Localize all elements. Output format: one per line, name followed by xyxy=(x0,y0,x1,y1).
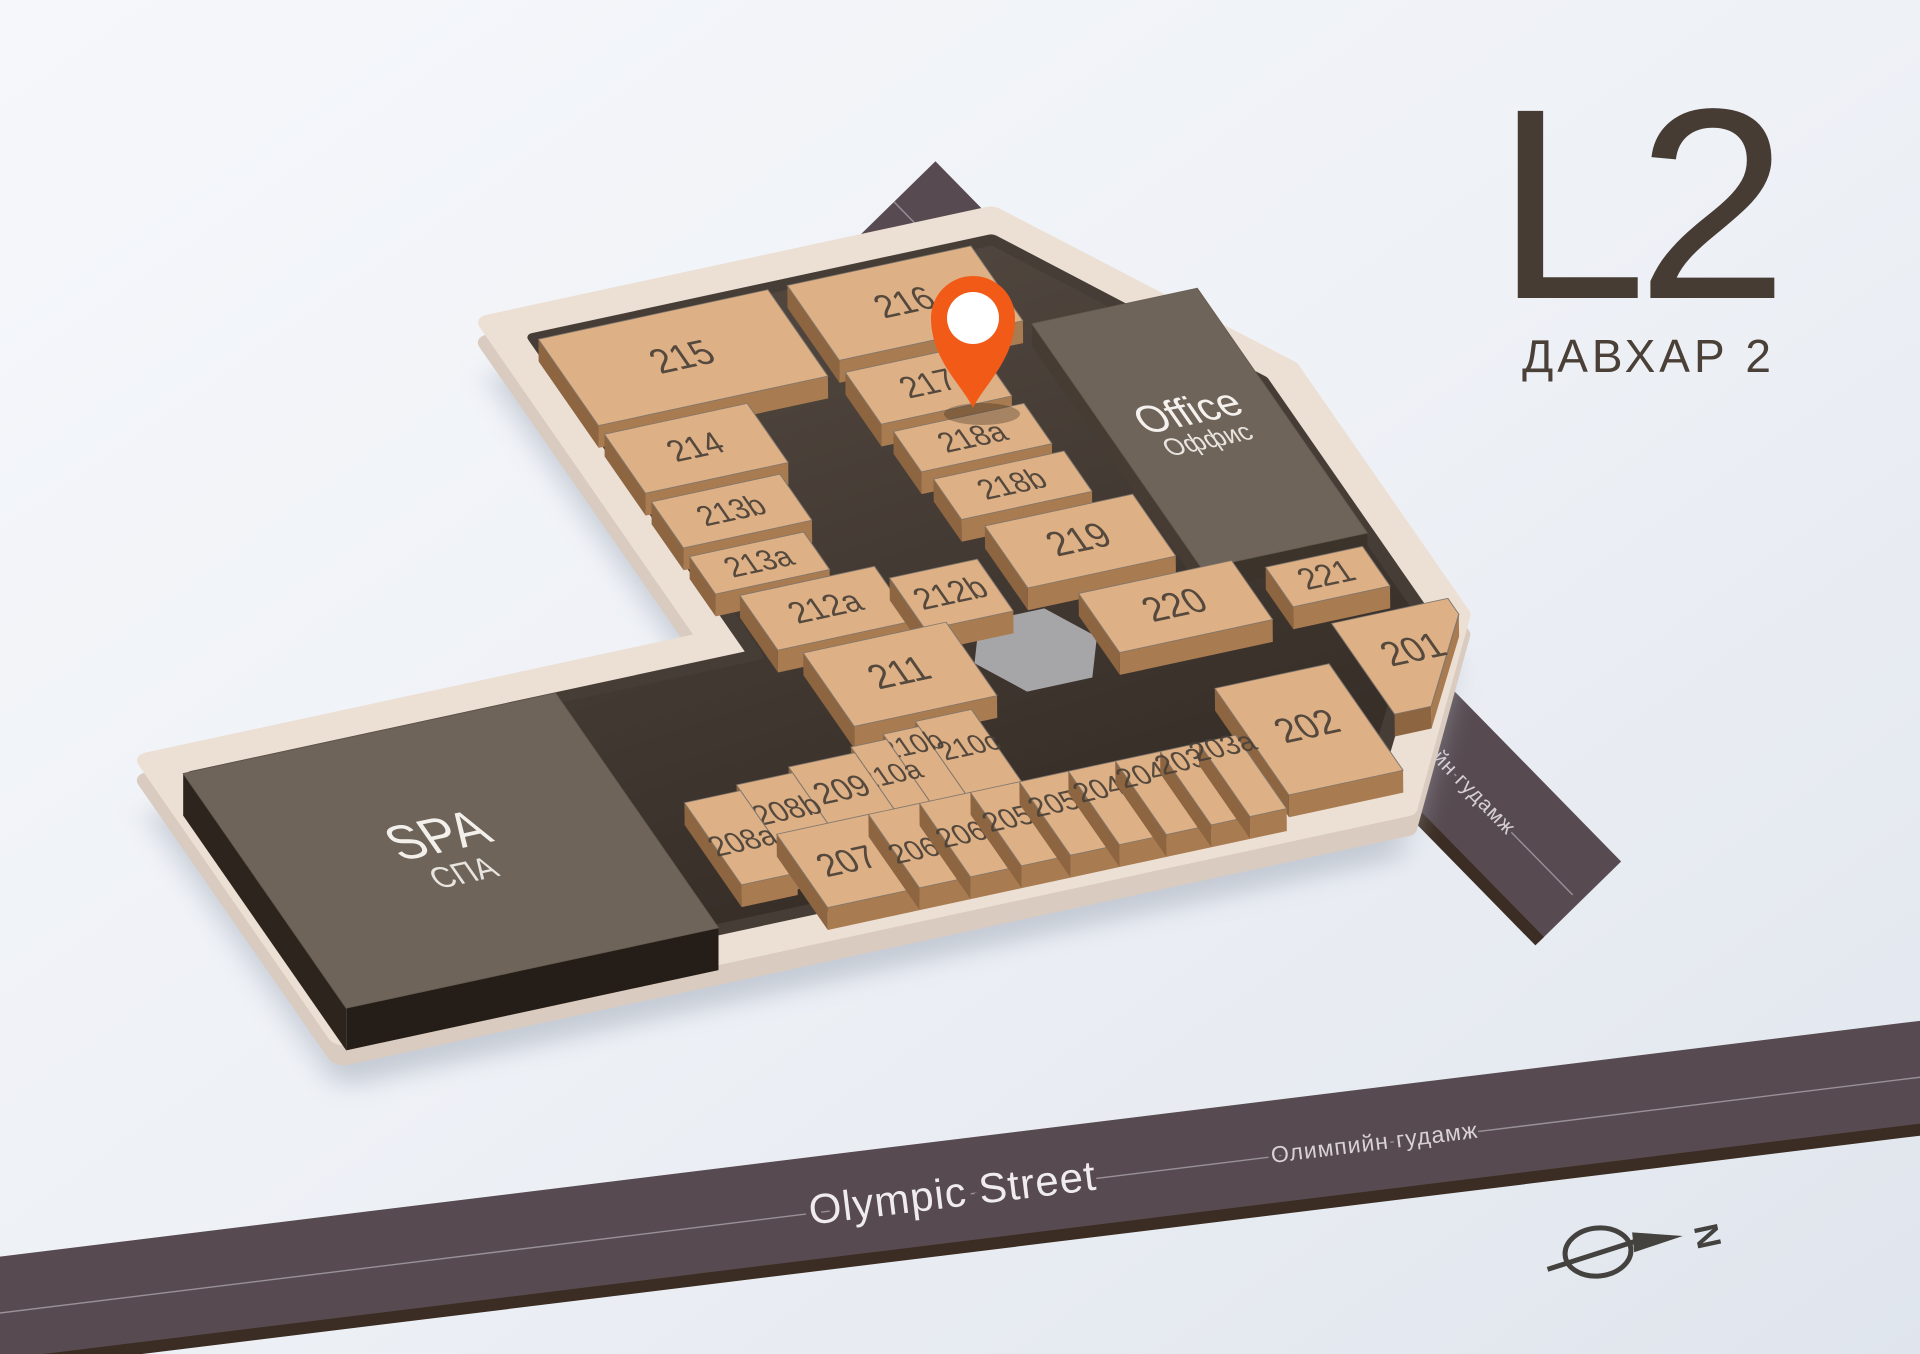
pin-hole xyxy=(947,292,999,344)
floor-map-page: Genden Street Гэндэнгийн гудамж Olympic … xyxy=(0,0,1920,1354)
floor-title: L2 ДАВХАР 2 xyxy=(1495,52,1778,382)
floor-map-canvas: Genden Street Гэндэнгийн гудамж Olympic … xyxy=(0,0,1920,1354)
floor-name-local: ДАВХАР 2 xyxy=(1522,330,1775,382)
floor-code: L2 xyxy=(1495,52,1778,356)
pin-shadow xyxy=(944,403,1020,425)
